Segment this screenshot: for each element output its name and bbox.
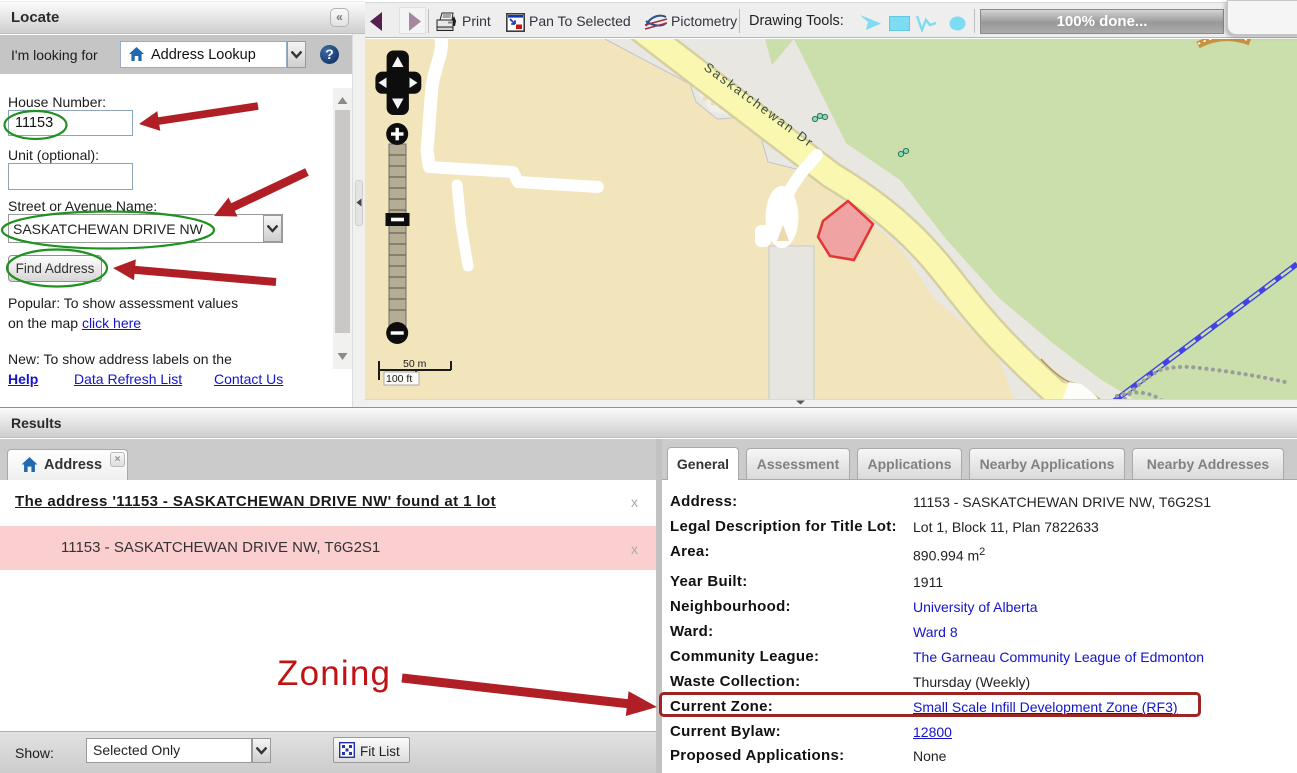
svg-text:100 ft: 100 ft bbox=[386, 373, 412, 385]
svg-text:50 m: 50 m bbox=[403, 358, 427, 370]
